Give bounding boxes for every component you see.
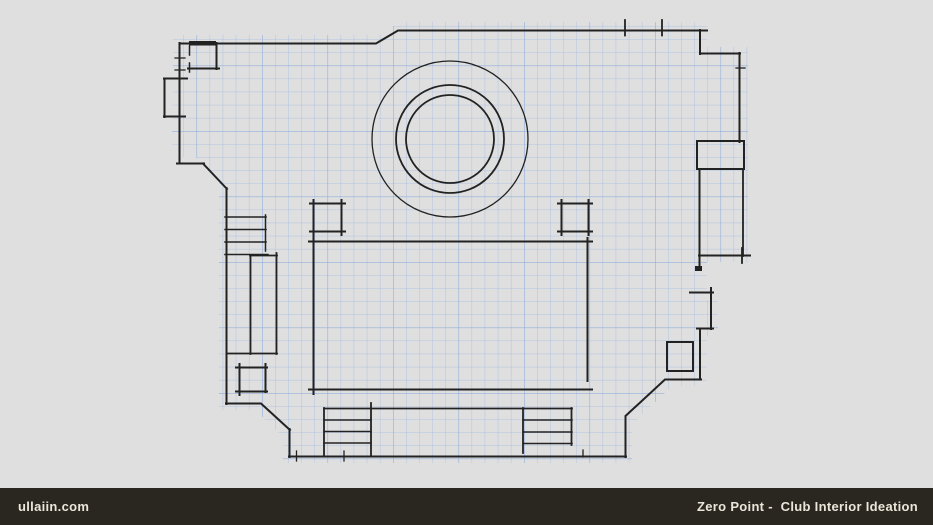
- site-label: ullaiin.com: [18, 499, 89, 514]
- plan-title: Zero Point - Club Interior Ideation: [697, 499, 918, 514]
- floor-plan-canvas: [0, 0, 933, 525]
- page: ullaiin.com Zero Point - Club Interior I…: [0, 0, 933, 525]
- footer-bar: ullaiin.com Zero Point - Club Interior I…: [0, 488, 933, 525]
- graph-paper-grid: [0, 0, 933, 525]
- wall-door-mark: [695, 266, 702, 271]
